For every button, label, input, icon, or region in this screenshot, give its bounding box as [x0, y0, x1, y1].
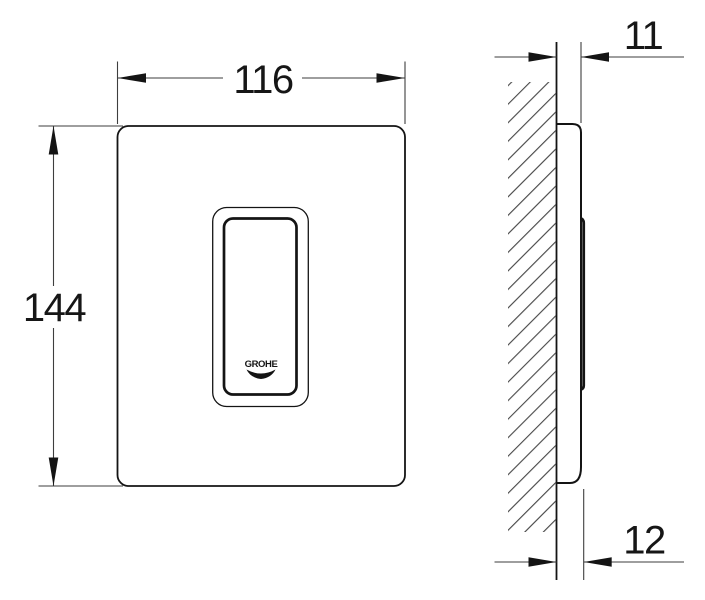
- plate-profile: [556, 124, 581, 483]
- plate-outline: [118, 126, 406, 486]
- arrow-right-icon: [377, 73, 406, 83]
- side-view: 11 12: [495, 14, 685, 580]
- grohe-logo-text: GROHE: [245, 359, 278, 370]
- arrow-left-icon: [581, 52, 609, 62]
- dimension-plate-depth-label: 11: [624, 14, 663, 58]
- wall-hatching: [508, 82, 556, 532]
- arrow-right-icon: [529, 52, 557, 62]
- flush-plate-dimension-drawing: GROHE 116 144: [0, 0, 705, 600]
- dimension-height: 144: [23, 126, 123, 486]
- arrow-left-icon: [584, 557, 612, 567]
- front-view: GROHE 116 144: [23, 58, 405, 486]
- dimension-width-label: 116: [233, 58, 293, 102]
- arrow-left-icon: [118, 73, 147, 83]
- grohe-logo-swoosh-icon: [247, 370, 276, 380]
- arrow-right-icon: [529, 557, 557, 567]
- dimension-button-depth-label: 12: [623, 519, 665, 563]
- dimension-height-label: 144: [23, 286, 86, 330]
- arrow-down-icon: [49, 458, 59, 487]
- technical-drawing-canvas: GROHE 116 144: [0, 0, 705, 600]
- dimension-width: 116: [118, 58, 406, 124]
- arrow-up-icon: [49, 126, 59, 155]
- grohe-logo: GROHE: [245, 359, 278, 379]
